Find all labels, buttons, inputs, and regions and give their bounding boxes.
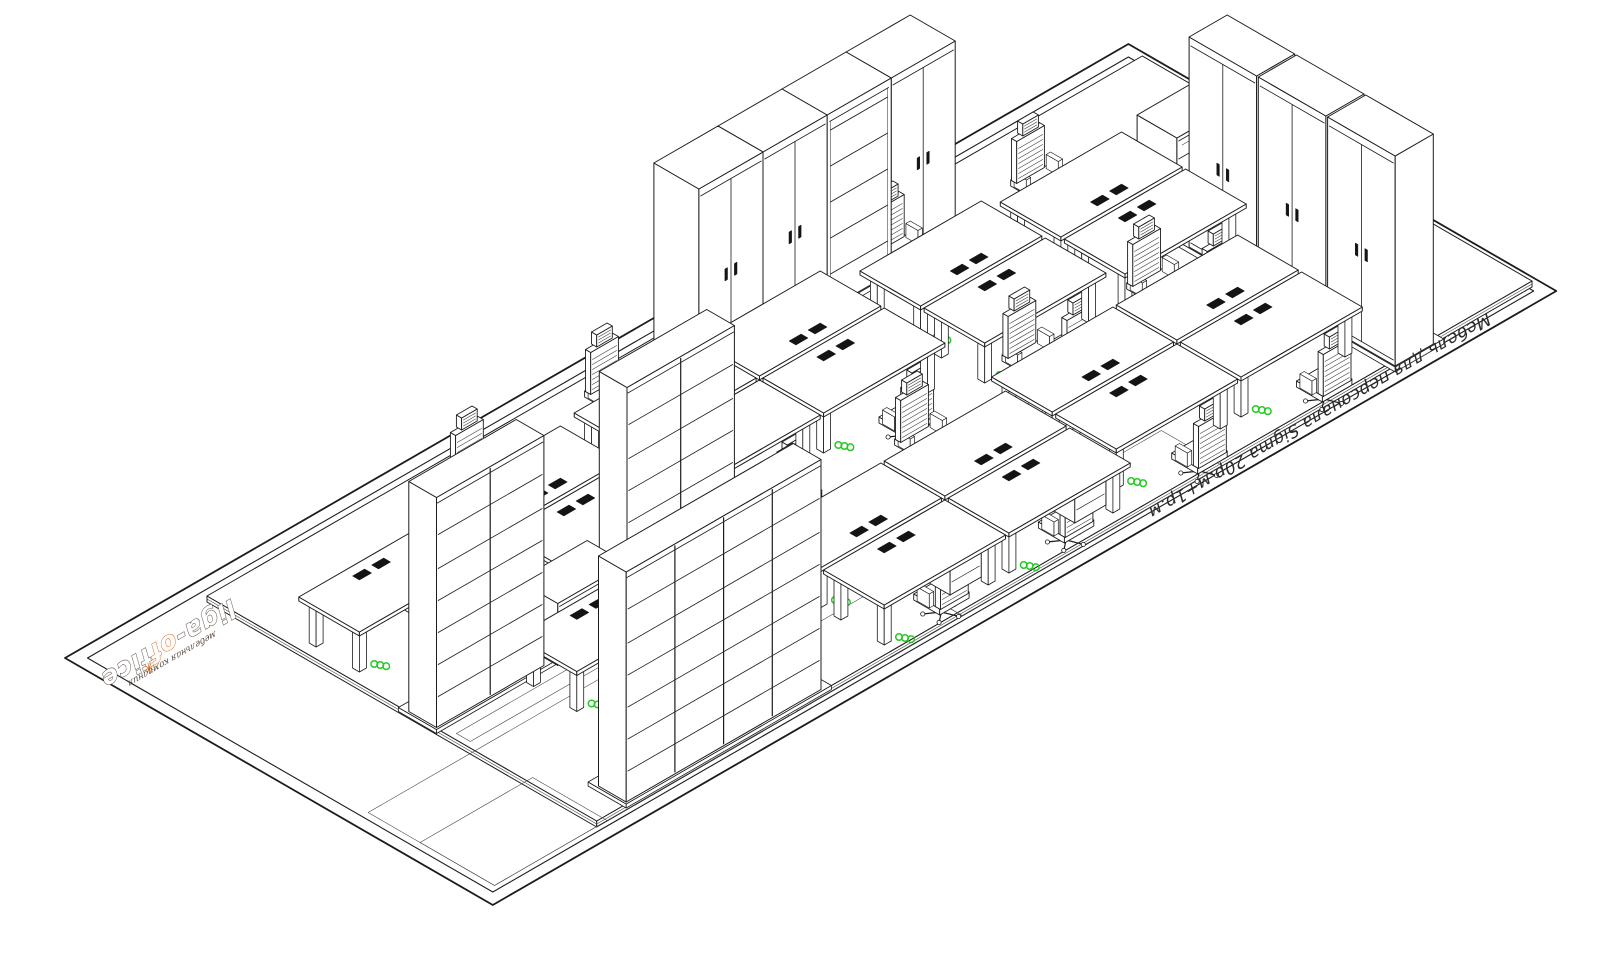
floor-plan-drawing: Мебель для персонала Sigma 20р.м+1р.м li…: [0, 0, 1600, 957]
isometric-scene: [65, 15, 1556, 905]
drawing-canvas: Мебель для персонала Sigma 20р.м+1р.м li…: [0, 0, 1600, 957]
